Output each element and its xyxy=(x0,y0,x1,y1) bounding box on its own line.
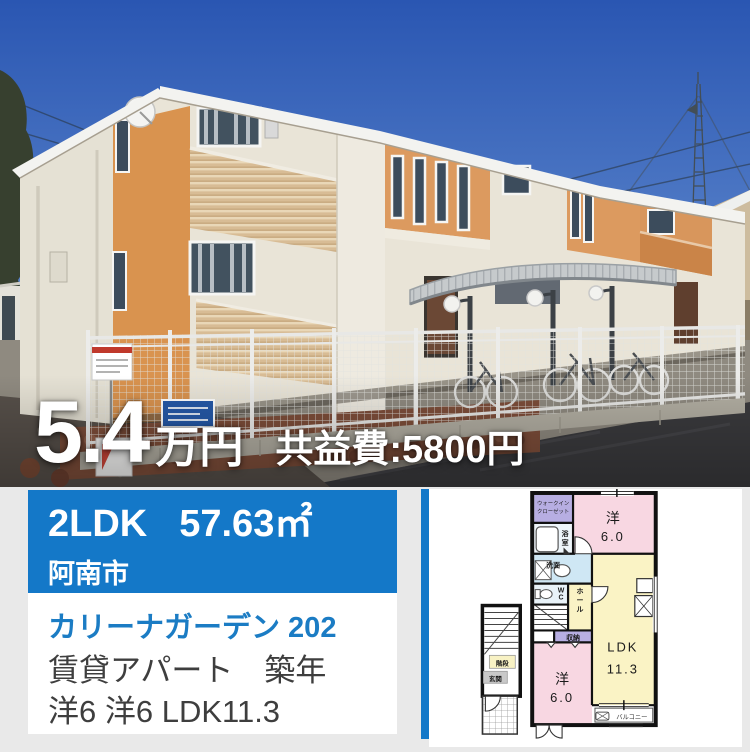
stairs-label: 階段 xyxy=(496,658,509,667)
price-overlay: 5.4 万円 共益費:5800円 xyxy=(34,388,525,476)
ldk-size: 11.3 xyxy=(607,661,639,676)
storage-label: 収納 xyxy=(566,633,580,642)
info-card: 2LDK 57.63㎡ 阿南市 カリーナガーデン 202 賃貸アパート 築年 洋… xyxy=(28,490,397,734)
balcony-fixture-icon xyxy=(596,712,609,720)
ldk-label: LDK xyxy=(607,639,638,654)
price-unit: 万円 xyxy=(155,411,243,475)
entrance-label: 玄関 xyxy=(489,674,502,683)
wic-label-line1: ウォークイン xyxy=(537,499,569,507)
area-label: 57.63㎡ xyxy=(179,502,312,548)
kitchen-icon xyxy=(635,579,653,617)
wic-label-line2: クローゼット xyxy=(537,507,569,515)
accent-bar xyxy=(421,489,429,739)
balcony-label: バルコニー xyxy=(616,713,647,721)
room1-label: 洋 xyxy=(606,510,620,526)
price-value: 5.4 xyxy=(34,388,147,476)
floorplan-image[interactable]: ウォークイン クローゼット 浴室 洗面 WC ホール 収納 洋 6.0 LDK … xyxy=(429,489,742,747)
info-body: カリーナガーデン 202 賃貸アパート 築年 洋6 洋6 LDK11.3 xyxy=(28,593,397,730)
toilet-icon xyxy=(535,590,552,599)
layout-area-line: 2LDK 57.63㎡ xyxy=(48,502,397,548)
city-label: 阿南市 xyxy=(48,552,397,591)
external-stairs xyxy=(482,606,520,735)
lamp-globe xyxy=(444,296,460,312)
property-type: 賃貸アパート 築年 xyxy=(48,653,397,689)
info-header: 2LDK 57.63㎡ 阿南市 xyxy=(28,490,397,593)
property-photo[interactable]: 5.4 万円 共益費:5800円 xyxy=(0,0,750,487)
room1-size: 6.0 xyxy=(601,529,625,544)
room2-label: 洋 xyxy=(555,671,569,687)
bath-label: 浴室 xyxy=(562,529,570,547)
wash-label: 洗面 xyxy=(546,561,560,570)
hall-label: ホール xyxy=(577,588,584,614)
layout-label: 2LDK xyxy=(48,502,147,548)
maintenance-fee: 共益費:5800円 xyxy=(275,418,524,473)
bathtub-icon xyxy=(536,527,558,552)
rooms-summary: 洋6 洋6 LDK11.3 xyxy=(48,694,397,730)
room2-size: 6.0 xyxy=(550,690,574,705)
floorplan-svg: ウォークイン クローゼット 浴室 洗面 WC ホール 収納 洋 6.0 LDK … xyxy=(429,489,742,747)
property-name-link[interactable]: カリーナガーデン 202 xyxy=(48,611,397,646)
